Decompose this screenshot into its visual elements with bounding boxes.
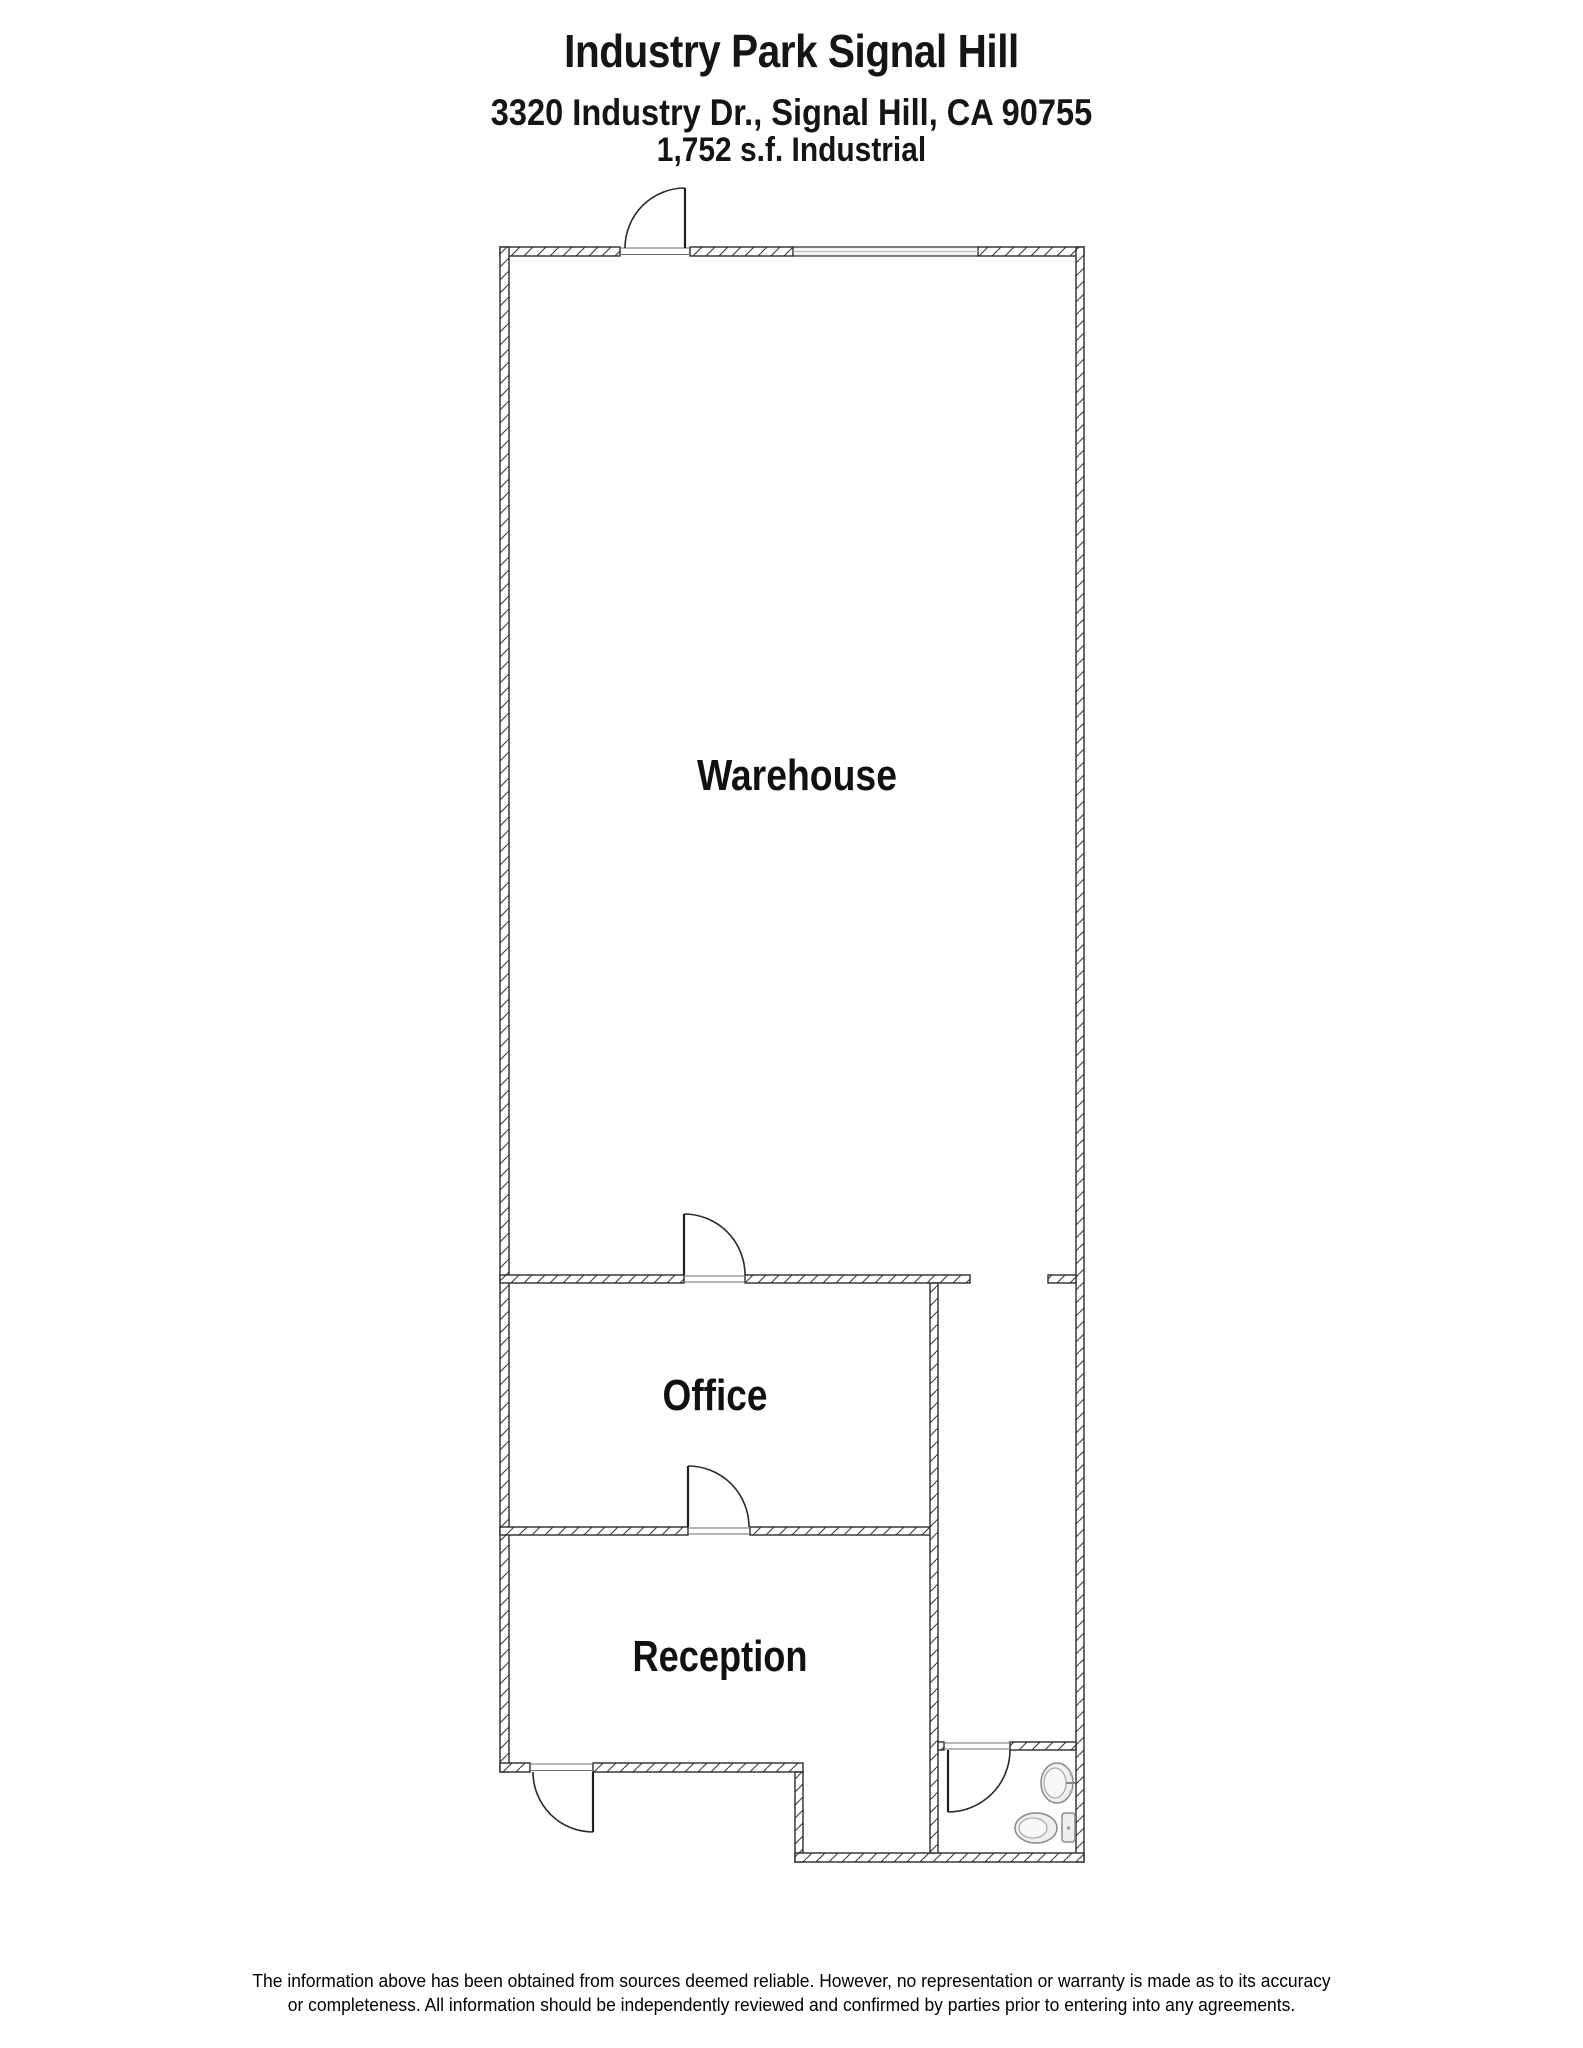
room-label-warehouse: Warehouse (697, 751, 897, 800)
exterior-walls (500, 247, 1084, 1862)
wall-segment (750, 1527, 937, 1535)
wall-segment (795, 1772, 803, 1862)
wall-segment (500, 1763, 530, 1772)
wall-segment (930, 1283, 938, 1853)
warehouse-to-office-door (684, 1214, 745, 1275)
disclaimer-line-2: or completeness. All information should … (24, 1995, 1560, 2016)
disclaimer-line-1: The information above has been obtained … (24, 1971, 1560, 1992)
top-wall-window-segment (793, 247, 978, 256)
wall-segment (1010, 1742, 1076, 1750)
sink-icon (1041, 1763, 1075, 1803)
wall-segment (795, 1853, 1084, 1862)
room-label-reception: Reception (633, 1632, 808, 1681)
wall-segment (593, 1763, 803, 1772)
bathroom-door (948, 1750, 1010, 1812)
wall-segment (500, 247, 509, 1772)
flyer-page: Industry Park Signal Hill 3320 Industry … (0, 0, 1583, 2048)
wall-segment (1076, 247, 1084, 1862)
office-to-reception-door (688, 1466, 749, 1527)
warehouse-exterior-door (625, 188, 685, 248)
wall-segment (938, 1742, 944, 1750)
wall-segment (745, 1275, 970, 1283)
room-label-office: Office (663, 1371, 768, 1420)
reception-exterior-door (533, 1772, 593, 1832)
wall-segment (500, 247, 620, 256)
floor-plan: Warehouse Office Reception (0, 0, 1583, 2048)
wall-segment (500, 1527, 688, 1535)
wall-segment (500, 1275, 684, 1283)
wall-segment (1048, 1275, 1076, 1283)
wall-segment (690, 247, 793, 256)
toilet-icon (1015, 1813, 1075, 1843)
wall-segment (978, 247, 1084, 256)
